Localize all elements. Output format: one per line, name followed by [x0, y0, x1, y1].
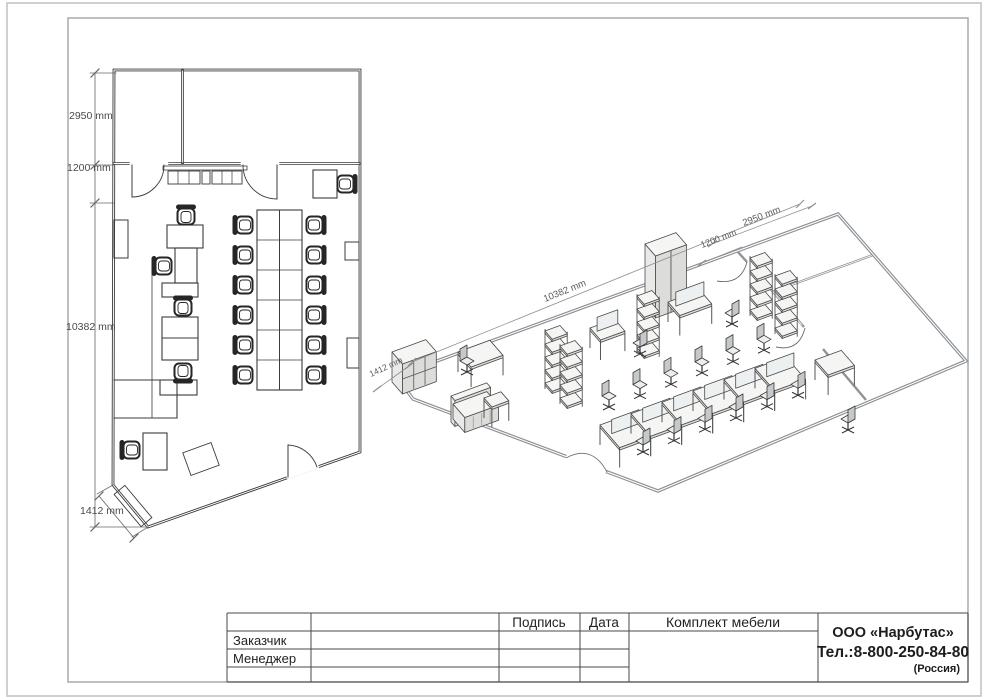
chair-plan	[307, 335, 327, 355]
company-name: ООО «Нарбутас»	[832, 625, 954, 641]
customer-label: Заказчик	[233, 633, 287, 648]
chair-plan	[233, 275, 253, 295]
drawing-sheet: 2950 mm 1200 mm 10382 mm 1412 mm	[0, 0, 988, 700]
signature-header: Подпись	[512, 615, 565, 630]
chair-plan	[233, 305, 253, 325]
chair-plan	[307, 275, 327, 295]
iso-furniture	[392, 233, 855, 468]
isometric-view: 10382 mm 1412 mm 2950 mm 1200 mm	[368, 200, 966, 491]
plan-dim-top: 2950 mm	[69, 110, 113, 122]
chair-plan	[233, 215, 253, 235]
manager-label: Менеджер	[233, 651, 296, 666]
chair-plan	[120, 440, 140, 460]
chair-plan	[307, 215, 327, 235]
plan-chairs	[120, 174, 358, 460]
chair-plan	[173, 364, 193, 384]
date-header: Дата	[589, 615, 619, 630]
drawing-canvas: 2950 mm 1200 mm 10382 mm 1412 mm	[0, 0, 988, 700]
title-block: Заказчик Менеджер Подпись Дата Комплект …	[227, 613, 969, 682]
chair-plan	[307, 305, 327, 325]
chair-plan	[307, 365, 327, 385]
plan-dimensions	[90, 69, 148, 542]
floor-plan-2d: 2950 mm 1200 mm 10382 mm 1412 mm	[66, 69, 360, 542]
chair-plan	[176, 205, 196, 225]
bench-desks-plan	[257, 210, 302, 390]
plan-dim-corner: 1412 mm	[80, 505, 124, 517]
plan-dim-side: 10382 mm	[66, 321, 116, 333]
chair-plan	[233, 335, 253, 355]
chair-plan	[152, 256, 172, 276]
chair-plan	[233, 365, 253, 385]
company-phone: Тел.:8-800-250-84-80	[817, 644, 969, 661]
iso-dim-partition: 1200 mm	[699, 227, 738, 250]
company-country: (Россия)	[914, 663, 961, 675]
chair-plan	[307, 245, 327, 265]
project-title: Комплект мебели	[666, 614, 780, 630]
iso-dim-side: 10382 mm	[542, 278, 588, 305]
plan-dim-reception: 1200 mm	[67, 162, 111, 174]
chair-plan	[173, 296, 193, 316]
chair-plan	[338, 174, 358, 194]
chair-plan	[233, 245, 253, 265]
